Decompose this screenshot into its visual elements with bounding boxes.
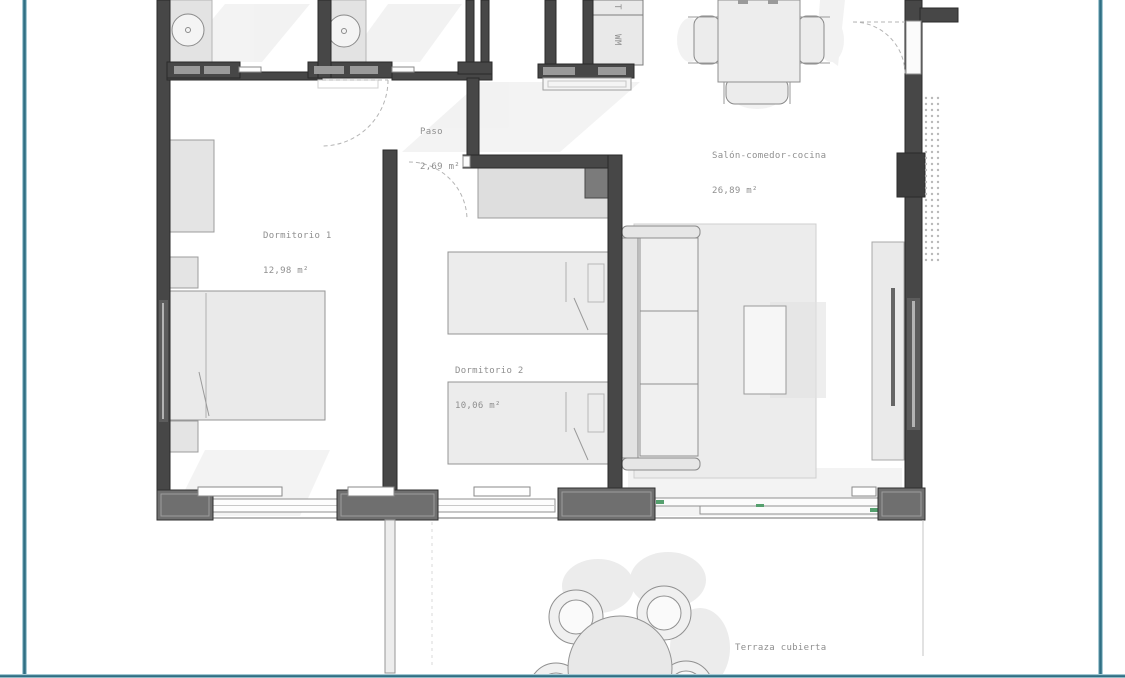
- dining-chair-right: [798, 16, 824, 64]
- dining-table: [718, 0, 800, 82]
- closet: [168, 140, 214, 232]
- room-name: Dormitorio 1: [263, 231, 332, 243]
- appliance-boxes: T WM: [593, 0, 643, 65]
- room-name: Dormitorio 2: [455, 366, 524, 378]
- terrace: [385, 520, 923, 678]
- floor-plan-page: T WM: [0, 0, 1125, 678]
- nightstand-bottom: [168, 421, 198, 452]
- double-bed: [168, 291, 325, 420]
- room-label-paso: Paso 2,69 m²: [420, 104, 460, 196]
- room-area: 26,89 m²: [712, 186, 826, 198]
- tv: [891, 288, 895, 406]
- floor-plan-drawing: T WM: [0, 0, 1125, 678]
- tv-sideboard: [872, 242, 904, 460]
- salon-furniture: [622, 224, 904, 478]
- washbasin-1: [172, 14, 204, 46]
- washing-machine-label: WM: [612, 34, 622, 46]
- wall-partition-dorm2-salon: [608, 155, 622, 519]
- wall-dorm2-north: [463, 155, 622, 168]
- room-label-terraza: Terraza cubierta 17,12 m²: [735, 620, 827, 678]
- room-label-salon: Salón-comedor-cocina 26,89 m²: [712, 128, 826, 220]
- room-name: Terraza cubierta: [735, 643, 827, 655]
- coffee-table: [744, 306, 786, 394]
- room-area: 12,98 m²: [263, 266, 332, 278]
- entry-door-swing: [853, 22, 905, 74]
- bathroom-door-swing: [322, 80, 388, 146]
- room-area: 10,06 m²: [455, 401, 524, 413]
- appliance-label-top: T: [612, 4, 622, 10]
- page-frame-right: [1098, 0, 1103, 678]
- room-name: Paso: [420, 127, 460, 139]
- dining-set: [688, 0, 830, 104]
- room-name: Salón-comedor-cocina: [712, 151, 826, 163]
- room-label-dormitorio-1: Dormitorio 1 12,98 m²: [263, 208, 332, 300]
- exterior-hatch: [924, 96, 940, 262]
- room-label-dormitorio-2: Dormitorio 2 10,06 m²: [455, 343, 524, 435]
- nightstand-top: [168, 257, 198, 288]
- sliding-door-salon: [655, 498, 878, 506]
- sofa: [622, 226, 700, 470]
- washbasin-2: [328, 15, 360, 47]
- page-frame-left: [22, 0, 27, 678]
- page-frame-bottom: [0, 674, 1125, 678]
- dining-chair-left: [694, 16, 720, 64]
- terrace-divider: [385, 520, 395, 673]
- room-area: 2,69 m²: [420, 162, 460, 174]
- entry-door-leaf: [906, 21, 921, 74]
- wall-partition-dorm1-dorm2: [383, 150, 397, 519]
